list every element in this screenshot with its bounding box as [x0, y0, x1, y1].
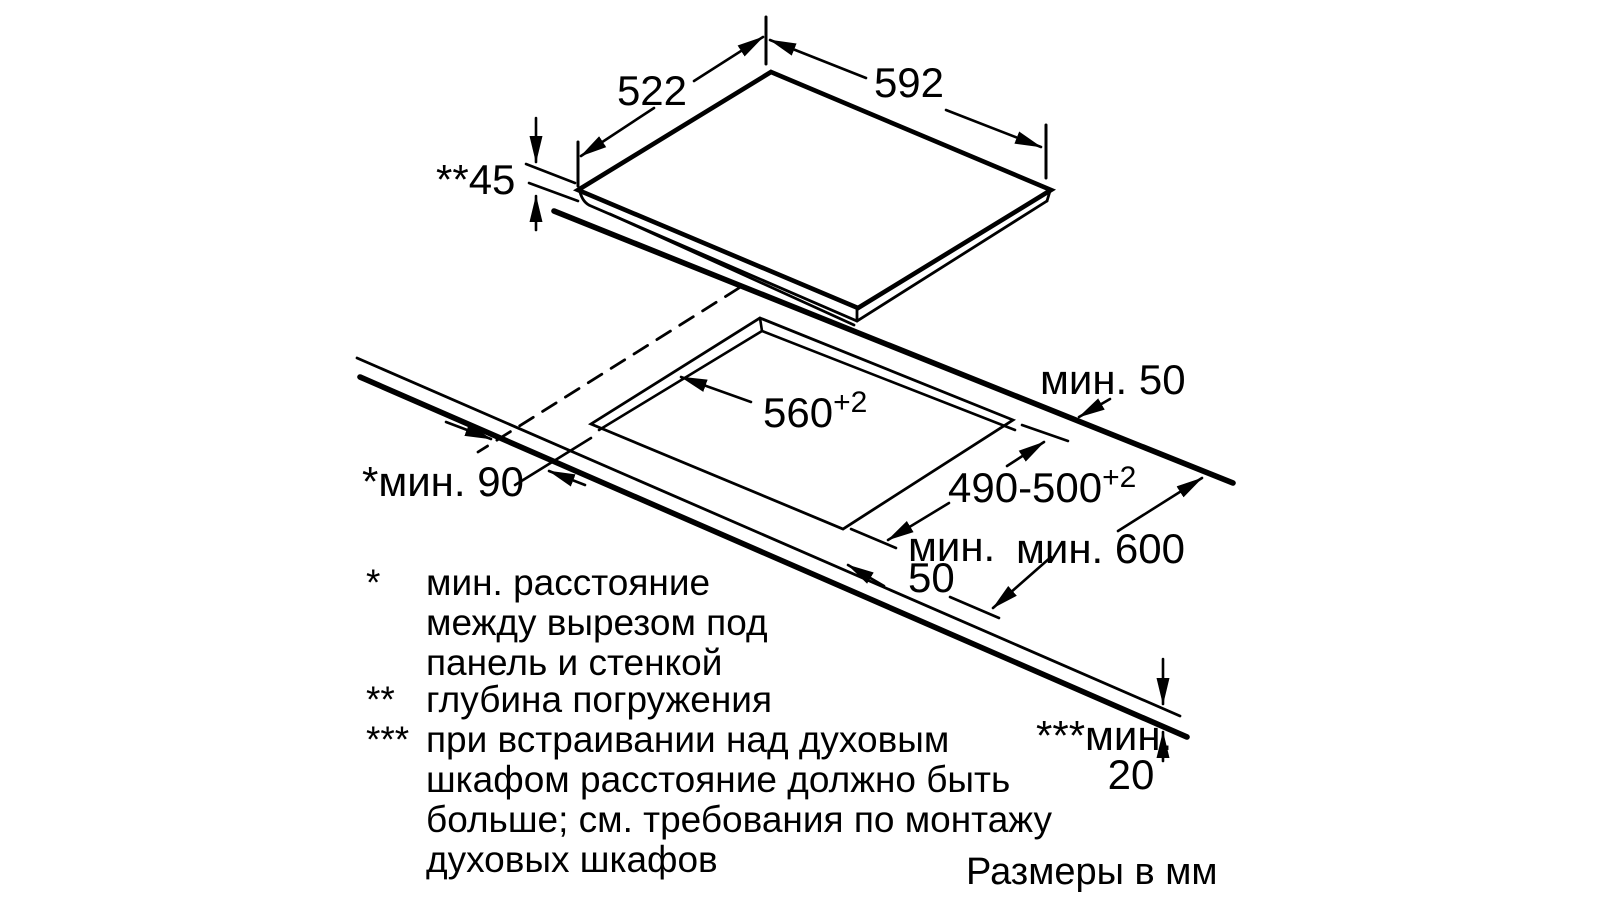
dim-line	[681, 377, 751, 402]
footnote-line: глубина погружения	[426, 679, 772, 720]
footnote-line: панель и стенкой	[426, 642, 722, 683]
dim-line	[770, 40, 866, 78]
dim-line	[848, 565, 884, 586]
extension-stub	[526, 164, 575, 183]
installation-diagram-page: 522 592 **45 560+2 490-500+2 мин. 50 мин…	[0, 0, 1600, 900]
footnote-line: духовых шкафов	[426, 839, 718, 880]
dim-min-50-front: мин. 50	[848, 523, 995, 601]
installation-diagram: 522 592 **45 560+2 490-500+2 мин. 50 мин…	[0, 0, 1600, 900]
dim-label-522: 522	[617, 67, 687, 114]
footnote-line: мин. расстояние	[426, 562, 710, 603]
dim-line	[1007, 442, 1044, 466]
dim-min-50-back: мин. 50	[1040, 356, 1186, 417]
dim-label-490-500: 490-500+2	[948, 461, 1136, 511]
footnote-marker: ***	[366, 719, 409, 760]
dim-line	[694, 37, 763, 81]
extension-stub	[950, 597, 999, 618]
footnote-line: между вырезом под	[426, 602, 768, 643]
dim-label-min20-value: 20	[1108, 751, 1155, 798]
dim-label-45: **45	[436, 156, 515, 203]
dim-label-560: 560+2	[763, 386, 867, 436]
dim-cutout-width-560: 560+2	[681, 377, 867, 436]
countertop-back-edge	[554, 211, 1233, 483]
extension-stub	[1022, 425, 1068, 441]
units-note: Размеры в мм	[966, 851, 1217, 893]
dim-panel-depth-522: 522	[578, 17, 766, 186]
cutout-inner-wall-left	[599, 331, 762, 430]
dim-label-min50-front-2: 50	[908, 554, 955, 601]
panel-glass-underside	[580, 192, 1047, 321]
footnote-line: при встраивании над духовым	[426, 719, 949, 760]
footnotes: * мин. расстояние между вырезом под пане…	[366, 562, 1052, 880]
footnote-line: больше; см. требования по монтажу	[426, 799, 1052, 840]
dim-label-min600: мин. 600	[1016, 525, 1185, 572]
footnote-line: шкафом расстояние должно быть	[426, 759, 1010, 800]
dim-label-min50-back: мин. 50	[1040, 356, 1186, 403]
dim-label-592: 592	[874, 59, 944, 106]
dim-panel-width-592: 592	[770, 40, 1046, 178]
footnote-marker: **	[366, 679, 395, 720]
extension-stub	[515, 438, 591, 485]
dim-line	[946, 110, 1041, 147]
footnote-marker: *	[366, 562, 380, 603]
dim-label-min90: *мин. 90	[362, 458, 524, 505]
